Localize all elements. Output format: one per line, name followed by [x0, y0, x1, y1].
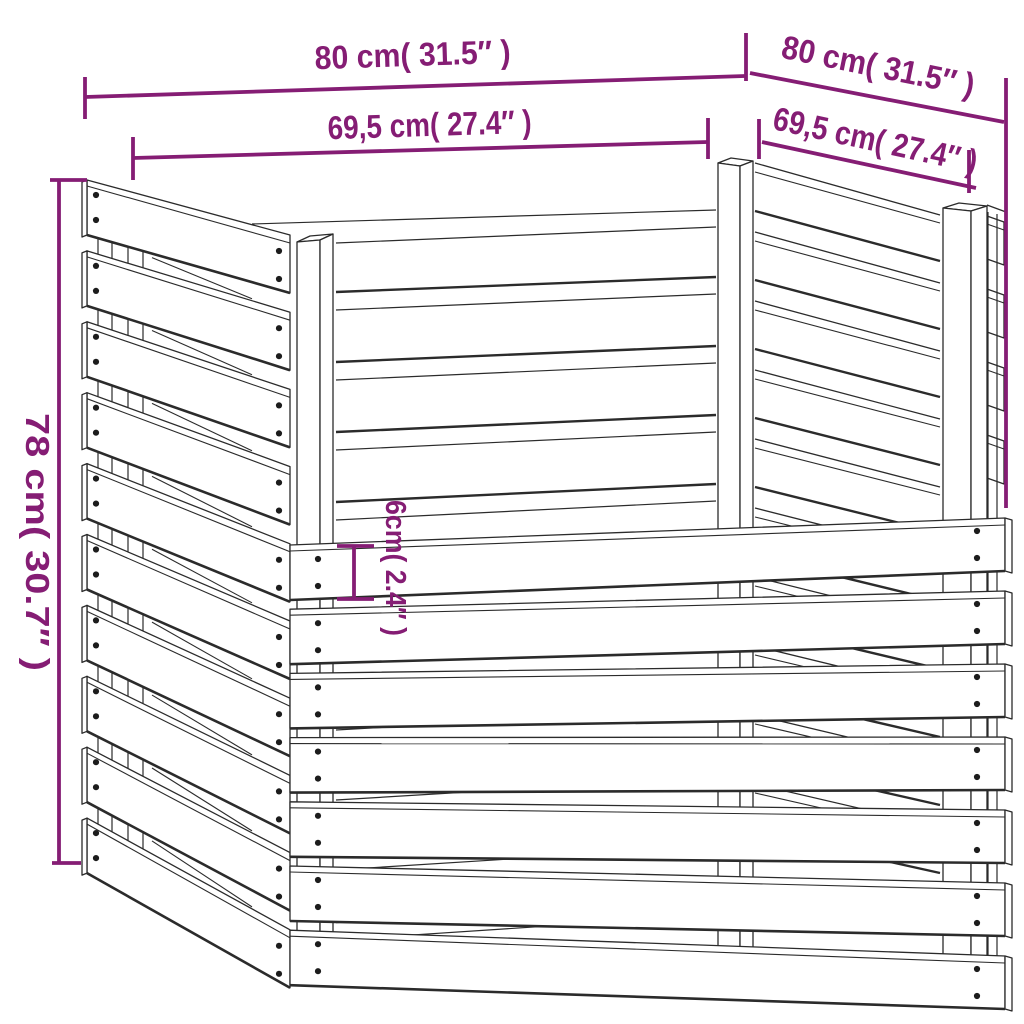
- interior-board-edge: [755, 232, 940, 283]
- screw-dot: [93, 617, 99, 623]
- screw-dot: [276, 788, 282, 794]
- slat-end-face: [1005, 591, 1012, 646]
- screw-dot: [93, 476, 99, 482]
- interior-board-edge: [336, 227, 716, 243]
- board-end-face: [987, 362, 1004, 411]
- interior-board-edge: [252, 210, 716, 224]
- interior-board-edge-dark: [755, 418, 940, 465]
- front-wall-slat: [290, 802, 1005, 863]
- front-wall-slat: [290, 737, 1005, 793]
- screw-dot: [974, 993, 980, 999]
- slat-end-face: [82, 818, 87, 875]
- interior-board-edge: [755, 439, 940, 487]
- screw-dot: [974, 893, 980, 899]
- dim-label-board-width: 6cm( 2.4″ ): [379, 500, 411, 636]
- slat-end-face: [82, 393, 87, 450]
- screw-dot: [93, 713, 99, 719]
- composter-dimension-diagram: 80 cm( 31.5″ ) 69,5 cm( 27.4″ ) 80 cm( 3…: [0, 0, 1024, 1024]
- screw-dot: [276, 943, 282, 949]
- screw-dot: [276, 557, 282, 563]
- screw-dot: [974, 774, 980, 780]
- screw-dot: [93, 759, 99, 765]
- dim-line-inner-width-left: [133, 142, 708, 158]
- screw-dot: [315, 877, 321, 883]
- screw-dot: [93, 784, 99, 790]
- screw-dot: [93, 501, 99, 507]
- screw-dot: [276, 634, 282, 640]
- screw-dot: [276, 971, 282, 977]
- screw-dot: [276, 894, 282, 900]
- screw-dot: [276, 662, 282, 668]
- interior-board-edge-dark: [755, 349, 940, 397]
- slat-end-face: [82, 605, 87, 662]
- interior-board-edge: [336, 432, 716, 450]
- dim-label-outer-width-left: 80 cm( 31.5″ ): [314, 33, 511, 76]
- interior-board-edge: [755, 163, 940, 215]
- screw-dot: [974, 555, 980, 561]
- screw-dot: [276, 866, 282, 872]
- slat-end-face: [82, 747, 87, 804]
- screw-dot: [93, 688, 99, 694]
- slat-end-face: [82, 180, 87, 237]
- board-end-face: [987, 289, 1004, 338]
- screw-dot: [93, 642, 99, 648]
- screw-dot: [276, 276, 282, 282]
- interior-board-edge: [755, 370, 940, 419]
- slat-end-face: [1005, 518, 1012, 573]
- interior-board-edge: [755, 172, 940, 223]
- screw-dot: [276, 325, 282, 331]
- slat-end-face: [1005, 883, 1012, 938]
- slat-end-face: [1005, 664, 1012, 719]
- right-rim-edge: [987, 205, 1006, 212]
- screw-dot: [315, 776, 321, 782]
- screw-dot: [276, 585, 282, 591]
- screw-dot: [315, 840, 321, 846]
- screw-dot: [93, 571, 99, 577]
- interior-board-edge-dark: [755, 211, 940, 261]
- interior-board-edge: [336, 363, 716, 380]
- screw-dot: [315, 904, 321, 910]
- screw-dot: [93, 405, 99, 411]
- board-end-face: [987, 435, 1004, 484]
- screw-dot: [276, 739, 282, 745]
- screw-dot: [93, 830, 99, 836]
- screw-dot: [93, 334, 99, 340]
- interior-board-edge-dark: [336, 277, 716, 292]
- screw-dot: [315, 941, 321, 947]
- screw-dot: [315, 647, 321, 653]
- dim-label-inner-width-left: 69,5 cm( 27.4″ ): [327, 103, 532, 146]
- screw-dot: [276, 508, 282, 514]
- board-end-face: [987, 216, 1004, 265]
- screw-dot: [276, 248, 282, 254]
- interior-board-edge: [755, 310, 940, 359]
- screw-dot: [276, 480, 282, 486]
- diagram-canvas: 80 cm( 31.5″ ) 69,5 cm( 27.4″ ) 80 cm( 3…: [0, 0, 1024, 1024]
- interior-board-edge: [336, 294, 716, 310]
- screw-dot: [93, 546, 99, 552]
- screw-dot: [276, 353, 282, 359]
- screw-dot: [315, 556, 321, 562]
- slat-end-face: [1005, 810, 1012, 865]
- screw-dot: [93, 430, 99, 436]
- screw-dot: [315, 813, 321, 819]
- dim-line-outer-width-left: [85, 76, 745, 97]
- screw-dot: [974, 747, 980, 753]
- screw-dot: [315, 749, 321, 755]
- screw-dot: [974, 701, 980, 707]
- screw-dot: [276, 816, 282, 822]
- composter-line-art: [82, 158, 1012, 1011]
- screw-dot: [315, 711, 321, 717]
- screw-dot: [974, 847, 980, 853]
- interior-board-edge: [755, 301, 940, 351]
- slat-end-face: [1005, 956, 1012, 1011]
- screw-dot: [315, 684, 321, 690]
- interior-board-edge-dark: [755, 280, 940, 329]
- screw-dot: [276, 430, 282, 436]
- screw-dot: [93, 192, 99, 198]
- screw-dot: [974, 820, 980, 826]
- screw-dot: [93, 217, 99, 223]
- screw-dot: [93, 855, 99, 861]
- screw-dot: [974, 601, 980, 607]
- slat-end-face: [1005, 737, 1012, 792]
- screw-dot: [276, 711, 282, 717]
- screw-dot: [276, 402, 282, 408]
- interior-board-edge-dark: [336, 346, 716, 362]
- slat-end-face: [82, 676, 87, 733]
- screw-dot: [93, 288, 99, 294]
- screw-dot: [315, 583, 321, 589]
- interior-board-edge-dark: [336, 415, 716, 432]
- slat-end-face: [82, 322, 87, 379]
- slat-end-face: [82, 464, 87, 521]
- screw-dot: [93, 263, 99, 269]
- screw-dot: [974, 528, 980, 534]
- interior-board-edge: [755, 241, 940, 291]
- screw-dot: [974, 920, 980, 926]
- slat-end-face: [82, 251, 87, 308]
- screw-dot: [974, 966, 980, 972]
- dim-label-outer-width-right: 80 cm( 31.5″ ): [779, 28, 978, 103]
- slat-end-face: [82, 535, 87, 592]
- front-wall-slat: [290, 866, 1005, 936]
- dim-label-height: 78 cm( 30.7″ ): [19, 413, 56, 671]
- screw-dot: [974, 628, 980, 634]
- screw-dot: [315, 968, 321, 974]
- interior-board-edge: [755, 379, 940, 427]
- interior-board-edge: [755, 448, 940, 495]
- screw-dot: [315, 620, 321, 626]
- screw-dot: [974, 674, 980, 680]
- screw-dot: [93, 359, 99, 365]
